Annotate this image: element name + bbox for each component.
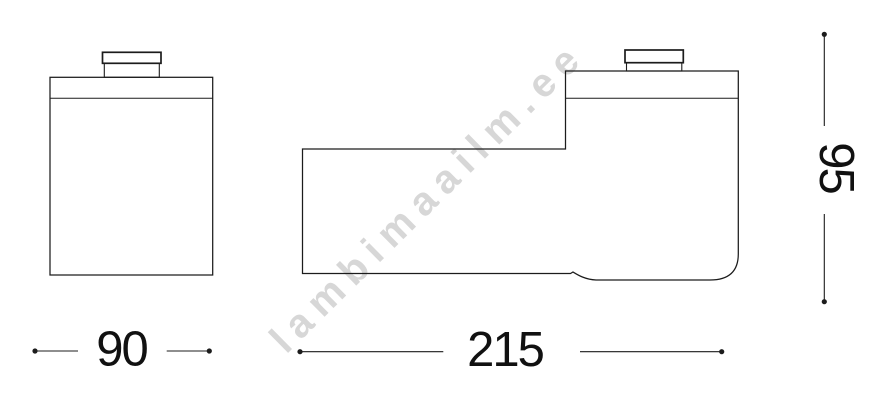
side-view-track-adapter-top bbox=[625, 50, 683, 63]
dimension-endpoint-dot bbox=[822, 299, 827, 304]
dimension-side-height: 95 bbox=[809, 32, 863, 305]
dimension-endpoint-dot bbox=[32, 348, 37, 353]
dimension-front-width: 90 bbox=[32, 323, 212, 377]
front-width-label: 90 bbox=[96, 323, 147, 377]
front-view-track-adapter-base bbox=[104, 63, 159, 77]
dimension-endpoint-dot bbox=[822, 32, 827, 37]
dimension-endpoint-dot bbox=[297, 349, 302, 354]
side-height-label: 95 bbox=[809, 142, 863, 193]
front-view bbox=[50, 52, 213, 275]
technical-drawing-page: lambimaailm.ee 90 bbox=[0, 0, 883, 401]
side-length-label: 215 bbox=[467, 323, 544, 377]
side-view-track-adapter-base bbox=[627, 63, 682, 71]
front-view-track-adapter-top bbox=[103, 52, 162, 63]
front-view-body-outline bbox=[50, 77, 213, 275]
technical-drawing-canvas: lambimaailm.ee 90 bbox=[0, 0, 883, 401]
watermark-text: lambimaailm.ee bbox=[261, 32, 594, 361]
dimension-side-length: 215 bbox=[297, 323, 724, 377]
